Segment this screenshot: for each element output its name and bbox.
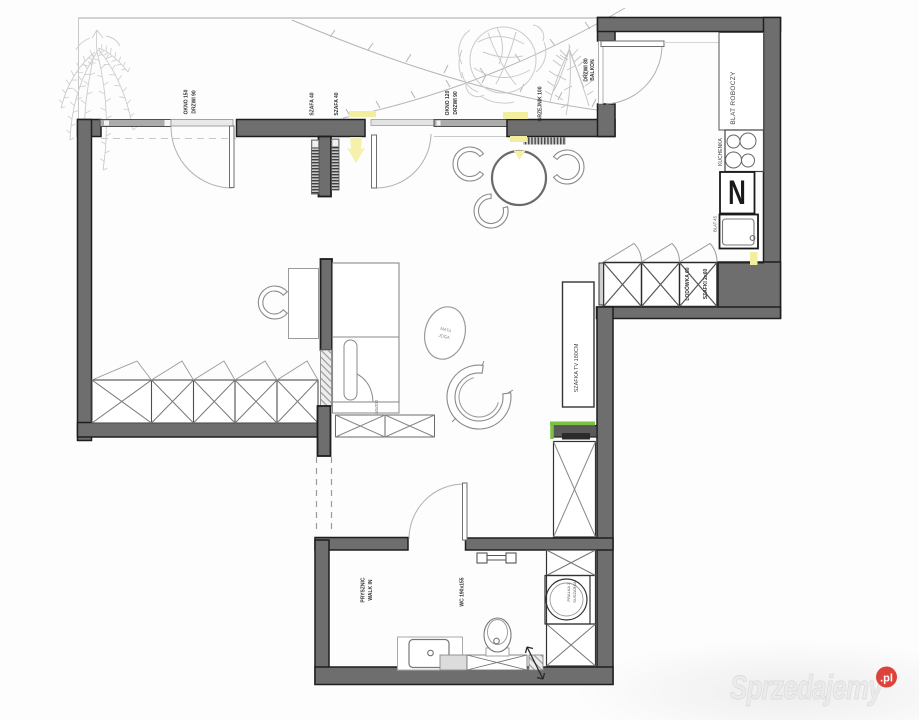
svg-text:Sprzedajemy: Sprzedajemy (730, 668, 884, 706)
svg-text:DRZWI 80: DRZWI 80 (584, 58, 590, 82)
svg-text:OKNO 120: OKNO 120 (445, 90, 451, 115)
svg-text:PRYSZNIC: PRYSZNIC (361, 577, 367, 602)
svg-text:DRZWI 90: DRZWI 90 (192, 90, 198, 114)
svg-text:GRZEJNIK 100: GRZEJNIK 100 (538, 86, 544, 121)
svg-text:.pl: .pl (880, 673, 893, 685)
svg-text:OKNO 150: OKNO 150 (184, 89, 190, 114)
svg-text:SZAFA 40: SZAFA 40 (334, 92, 340, 115)
svg-text:SZAFKI 2x60: SZAFKI 2x60 (703, 269, 709, 300)
svg-text:SZAFA 40: SZAFA 40 (310, 92, 316, 115)
svg-text:BLAT ROBOCZY: BLAT ROBOCZY (730, 71, 737, 125)
svg-text:LODÓWKA 60: LODÓWKA 60 (683, 267, 691, 300)
svg-text:KUCHENKA: KUCHENKA (718, 137, 724, 165)
svg-text:BALKON: BALKON (590, 59, 596, 81)
svg-text:PRALKA Z: PRALKA Z (566, 582, 571, 602)
svg-text:DRZWI 90: DRZWI 90 (453, 91, 459, 115)
svg-text:SZAFKA TV 180CM: SZAFKA TV 180CM (574, 343, 580, 392)
svg-text:WALK IN: WALK IN (368, 579, 374, 600)
svg-text:160x200: 160x200 (374, 399, 379, 416)
svg-text:WC 190x155: WC 190x155 (460, 577, 466, 606)
svg-text:BLAT 45: BLAT 45 (713, 215, 718, 232)
svg-text:N: N (728, 174, 746, 212)
svg-text:SUSZARKĄ: SUSZARKĄ (572, 581, 577, 603)
